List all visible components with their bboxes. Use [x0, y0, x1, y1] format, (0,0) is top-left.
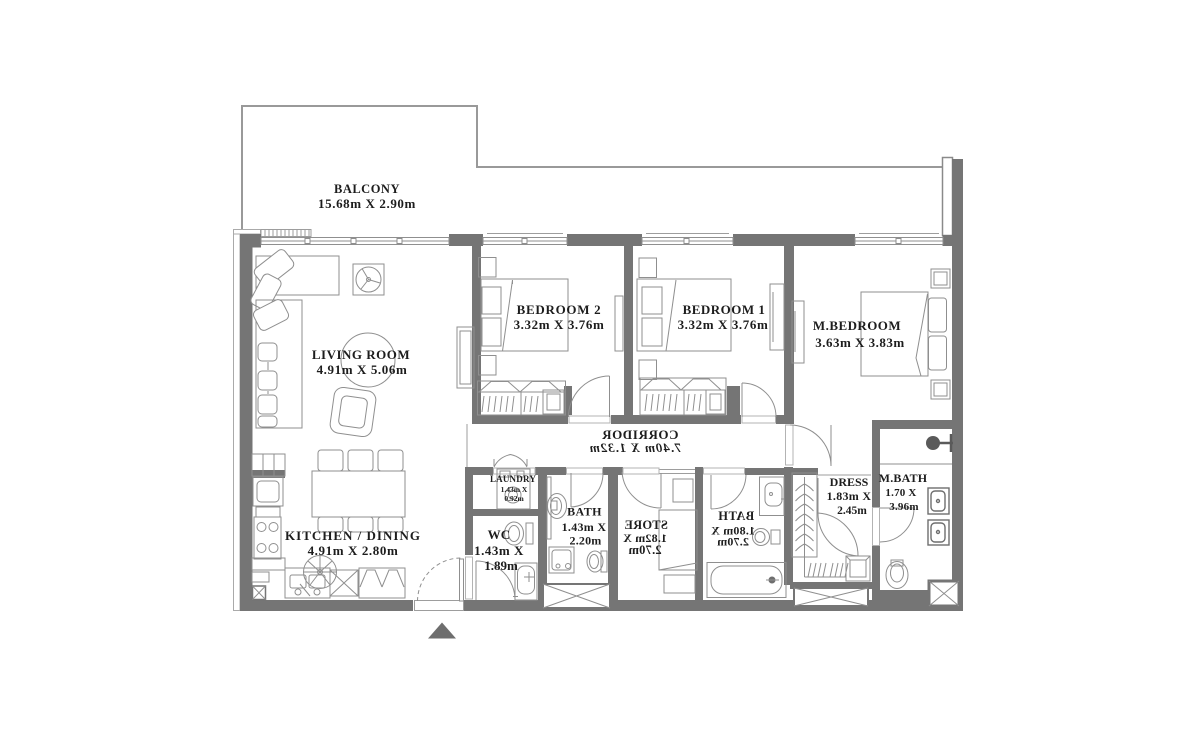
svg-text:3.63m X 3.83m: 3.63m X 3.83m: [815, 335, 905, 350]
svg-text:1.83m X: 1.83m X: [827, 489, 872, 503]
svg-text:BATH: BATH: [718, 509, 755, 523]
svg-text:1.43m X: 1.43m X: [501, 485, 528, 494]
svg-text:4.91m X 5.06m: 4.91m X 5.06m: [317, 362, 408, 377]
svg-text:1.43m X: 1.43m X: [474, 543, 524, 558]
svg-text:4.91m X 2.80m: 4.91m X 2.80m: [308, 543, 399, 558]
svg-text:2.45m: 2.45m: [837, 505, 867, 517]
svg-text:BEDROOM 1: BEDROOM 1: [683, 302, 766, 317]
svg-text:LIVING ROOM: LIVING ROOM: [312, 347, 410, 362]
svg-text:WC: WC: [488, 527, 511, 542]
svg-text:M.BEDROOM: M.BEDROOM: [813, 318, 901, 333]
svg-text:BEDROOM 2: BEDROOM 2: [517, 302, 602, 317]
svg-text:1.70 X: 1.70 X: [885, 487, 916, 499]
svg-text:2.70m: 2.70m: [628, 543, 662, 557]
svg-text:M.BATH: M.BATH: [879, 471, 928, 485]
svg-text:STORE: STORE: [624, 518, 668, 532]
svg-text:1.89m: 1.89m: [484, 558, 518, 573]
svg-text:1.43m X: 1.43m X: [562, 520, 607, 534]
svg-text:KITCHEN / DINING: KITCHEN / DINING: [285, 528, 421, 543]
svg-text:DRESS: DRESS: [830, 475, 869, 489]
svg-text:BALCONY: BALCONY: [334, 182, 400, 196]
svg-text:0.92m: 0.92m: [504, 494, 524, 503]
svg-text:3.32m X 3.76m: 3.32m X 3.76m: [514, 317, 605, 332]
svg-text:2.70m: 2.70m: [717, 535, 749, 549]
svg-text:7.40m X 1.32m: 7.40m X 1.32m: [589, 440, 682, 455]
svg-text:2.20m: 2.20m: [570, 534, 602, 548]
svg-text:LAUNDRY: LAUNDRY: [490, 474, 536, 484]
svg-text:BATH: BATH: [567, 505, 602, 519]
svg-text:15.68m X 2.90m: 15.68m X 2.90m: [318, 196, 416, 211]
svg-text:3.32m X 3.76m: 3.32m X 3.76m: [678, 317, 769, 332]
svg-text:3.96m: 3.96m: [889, 501, 918, 513]
